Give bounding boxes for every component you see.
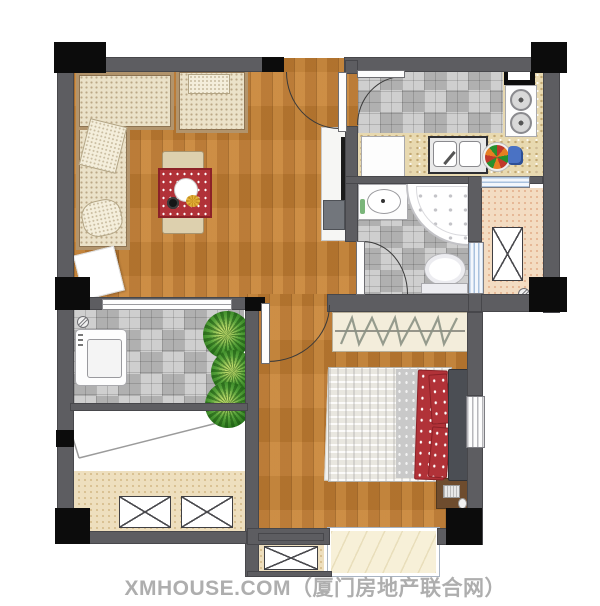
floor-drain-icon <box>77 316 89 328</box>
wall-bath-bottom <box>327 294 560 312</box>
wall-right <box>543 57 560 313</box>
column <box>529 277 567 312</box>
armchair-cushion-icon <box>188 74 230 94</box>
desk-icon <box>436 478 468 509</box>
bedroom-balcony-floor <box>328 528 439 576</box>
wall-counter-bath-right <box>528 176 543 184</box>
wall-bath-right-upper <box>468 176 482 242</box>
dining-table-icon <box>158 168 212 218</box>
ac-unit-icon <box>264 546 318 570</box>
utility-window-icon <box>102 299 232 310</box>
burner-icon <box>510 89 532 111</box>
wall-small-balcony-top <box>258 533 324 541</box>
bottle-icon <box>360 199 365 214</box>
fruit-plate-icon <box>483 143 511 171</box>
column <box>54 42 106 73</box>
balcony-window-icon <box>481 176 530 188</box>
dish-icon <box>186 195 200 207</box>
column <box>446 508 482 545</box>
kettle-icon <box>508 146 523 165</box>
kitchen-sink-icon <box>428 136 488 174</box>
wall-bedroom-right-upper <box>467 312 483 396</box>
keyboard-icon <box>443 485 460 498</box>
gas-stove-icon <box>505 85 537 137</box>
column <box>55 277 90 310</box>
washing-machine-icon <box>75 329 127 386</box>
ac-unit-icon <box>119 496 171 528</box>
toilet-icon <box>424 253 466 286</box>
column <box>55 508 90 544</box>
bathroom-door-icon <box>356 241 365 295</box>
ac-unit-icon <box>492 227 523 281</box>
toilet-tank-icon <box>421 283 468 294</box>
floor-plan: XMHOUSE.COM（厦门房地产联合网） <box>0 0 600 606</box>
burner-icon <box>510 112 532 134</box>
wardrobe-hangers-icon <box>333 313 467 349</box>
wardrobe-icon <box>332 312 470 352</box>
bedroom-window-icon <box>466 396 485 448</box>
entry-door-icon <box>338 72 347 132</box>
wall-counter-bath <box>345 176 481 184</box>
kitchen-door-icon <box>357 70 405 78</box>
column <box>56 430 74 447</box>
ac-unit-icon <box>181 496 233 528</box>
balcony-window-icon <box>468 242 484 294</box>
column <box>262 57 284 72</box>
bowl-icon <box>167 197 179 209</box>
bathroom-vanity-icon <box>358 184 408 220</box>
bedroom-door-icon <box>261 303 270 364</box>
wall-bath-right-lower <box>468 292 482 312</box>
speaker-icon <box>323 200 345 230</box>
wall-utility-bottom <box>70 403 248 411</box>
wall-living-kitchen <box>345 126 358 242</box>
column <box>531 42 567 73</box>
watermark-text: XMHOUSE.COM（厦门房地产联合网） <box>125 572 507 602</box>
